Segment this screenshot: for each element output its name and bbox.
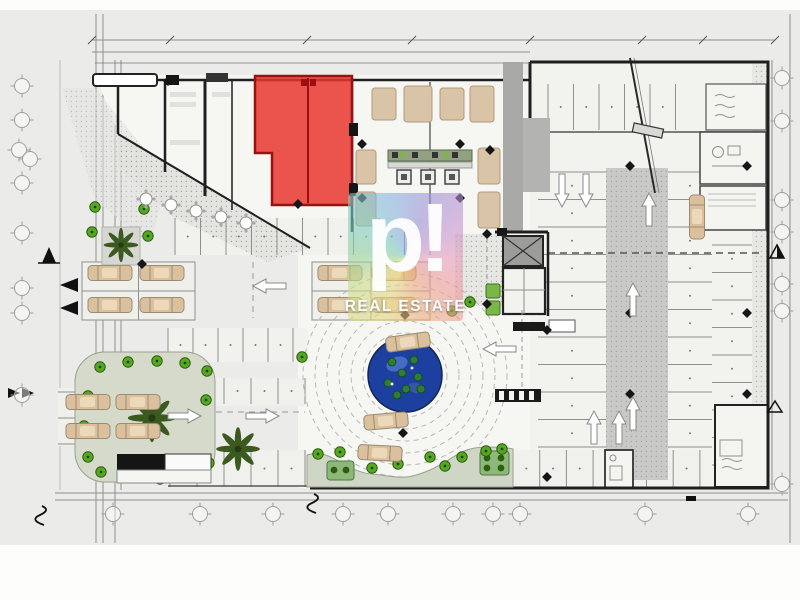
floor-plan-drawing	[0, 0, 800, 600]
garage-ramp	[606, 168, 668, 480]
toilet-room	[700, 132, 766, 184]
page-margin	[0, 545, 800, 600]
entry-canopy	[93, 74, 157, 86]
crosswalk	[495, 389, 541, 402]
storage-room	[706, 84, 766, 130]
kiosk-structure	[117, 454, 211, 483]
speed-bump	[513, 322, 545, 331]
utility-room	[605, 450, 633, 488]
service-room	[700, 186, 766, 230]
floor-plan-page: p! REAL ESTATE	[0, 0, 800, 600]
